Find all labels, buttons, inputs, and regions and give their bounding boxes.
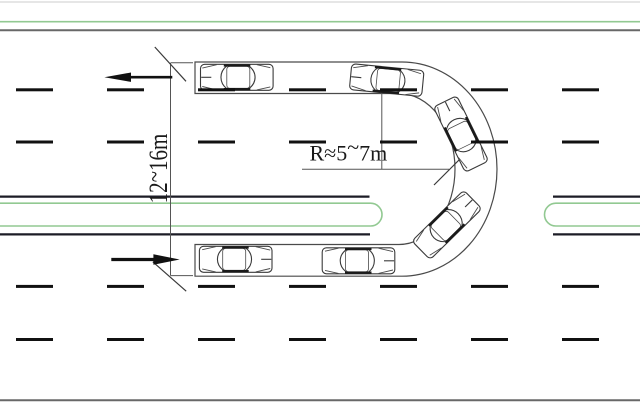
svg-text:R≈5~7m: R≈5~7m xyxy=(310,135,388,166)
svg-text:12~16m: 12~16m xyxy=(141,133,174,203)
